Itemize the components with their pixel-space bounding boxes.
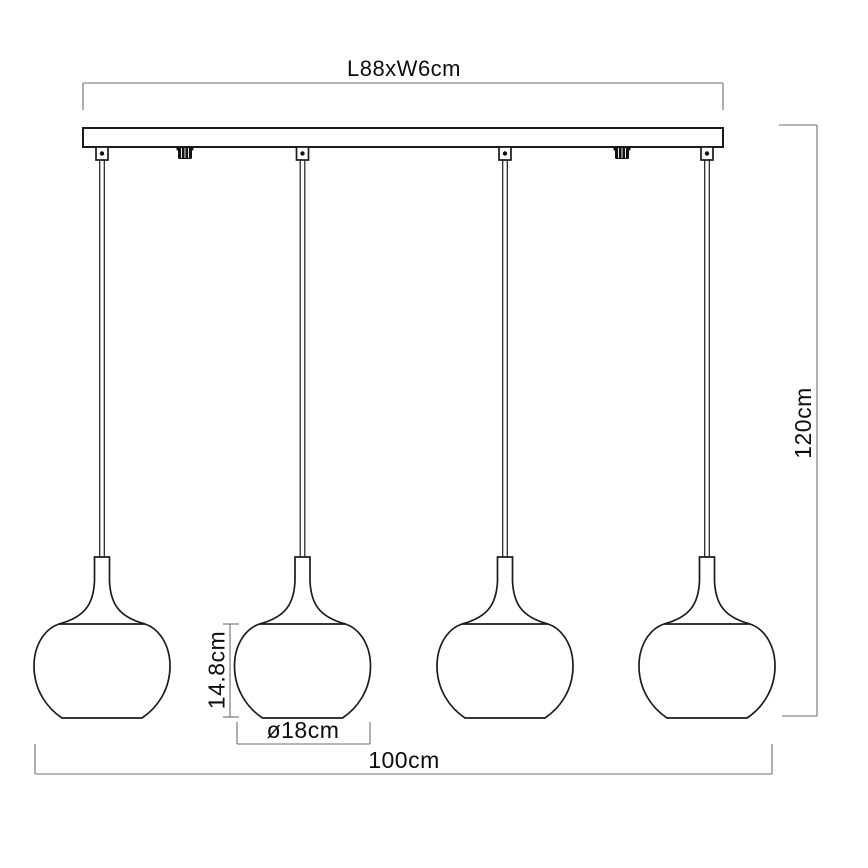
pendant-4 (639, 147, 775, 718)
pendant-3 (437, 147, 573, 718)
canopy-size-label: L88xW6cm (304, 56, 504, 82)
canopy-width-dimension-lines (83, 83, 723, 110)
overall-width-label: 100cm (334, 747, 474, 773)
pendant-1 (34, 147, 170, 718)
ceiling-plate (83, 128, 723, 147)
overall-height-label: 120cm (790, 373, 816, 473)
shade-diameter-label: ø18cm (233, 717, 373, 743)
shade-height-label: 14.8cm (204, 620, 230, 721)
pendant-2 (235, 147, 371, 718)
cable-lock-screw-2 (614, 147, 631, 159)
cable-lock-screw-1 (177, 147, 194, 159)
line-drawing (0, 0, 868, 868)
pendant-lamp-dimension-diagram: L88xW6cm 120cm 14.8cm ø18cm 100cm (0, 0, 868, 868)
